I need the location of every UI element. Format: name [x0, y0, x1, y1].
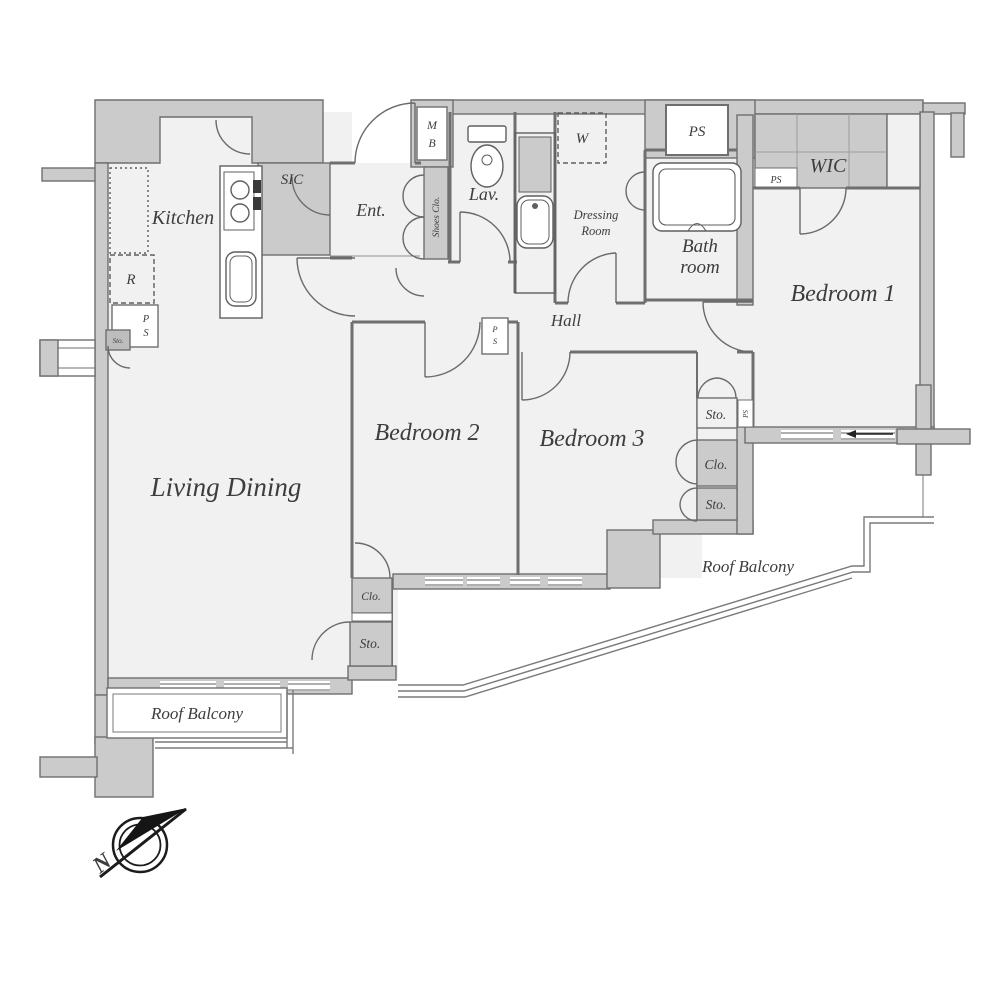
toilet	[468, 126, 506, 187]
label-bedroom3: Bedroom 3	[539, 426, 644, 452]
label-ps-wic: PS	[769, 175, 781, 186]
label-bedroom1: Bedroom 1	[790, 281, 895, 307]
label-lavatory: Lav.	[468, 184, 499, 204]
label-shoes-closet: Shoes Clo.	[432, 197, 442, 238]
label-kitchen: Kitchen	[151, 207, 214, 229]
label-clo-bedroom2: Clo.	[361, 591, 381, 603]
entrance-door-arc	[355, 103, 415, 163]
floor-plan-svg: Kitchen SIC Ent. Lav. DressingRoom Bathr…	[0, 0, 1000, 1000]
bathtub	[653, 163, 741, 231]
meter-box	[417, 107, 447, 160]
compass: N	[87, 808, 187, 879]
label-ps-column: PS	[742, 410, 750, 419]
label-sto-right-top: Sto.	[706, 407, 727, 422]
label-roof-balcony-left: Roof Balcony	[150, 704, 244, 723]
floor-plan-page: Kitchen SIC Ent. Lav. DressingRoom Bathr…	[0, 0, 1000, 1000]
label-entrance: Ent.	[355, 200, 386, 220]
kitchen-island	[220, 166, 262, 318]
label-clo-right: Clo.	[705, 457, 728, 472]
label-sic: SIC	[281, 172, 304, 188]
label-sto-right-bottom: Sto.	[706, 497, 727, 512]
label-hall: Hall	[550, 311, 582, 330]
label-bathroom: Bathroom	[680, 236, 719, 278]
label-bedroom2: Bedroom 2	[374, 420, 479, 446]
label-wic: WIC	[810, 155, 847, 177]
label-ps-top: PS	[688, 124, 706, 140]
label-roof-balcony-right: Roof Balcony	[701, 557, 795, 576]
label-sto-kitchen: Sto.	[113, 337, 124, 345]
label-sto-living: Sto.	[360, 636, 381, 651]
label-refrigerator: R	[125, 272, 135, 288]
duct-sliver	[352, 613, 392, 621]
label-washer: W	[576, 131, 590, 147]
label-living-dining: Living Dining	[150, 472, 302, 502]
